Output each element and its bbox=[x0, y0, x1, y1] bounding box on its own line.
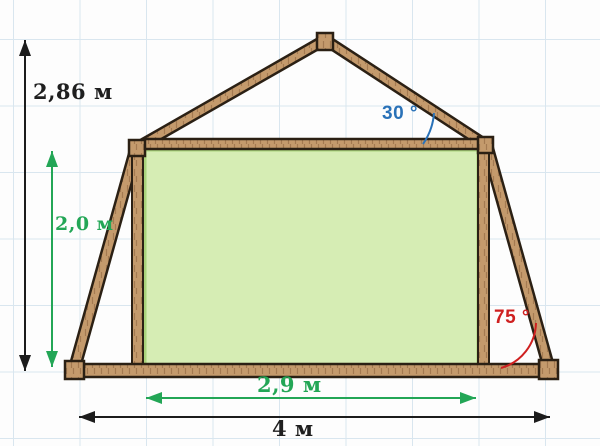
right-eaves-joint-block bbox=[478, 137, 493, 153]
total-width-label: 4 м bbox=[272, 418, 314, 439]
attic-room-area bbox=[145, 150, 478, 366]
left-post bbox=[132, 150, 143, 366]
roof-top-left-beam bbox=[136, 41, 323, 148]
roof-top-right-beam bbox=[327, 41, 486, 145]
wall-left-beam bbox=[74, 148, 136, 370]
left-eaves-joint-block bbox=[129, 140, 145, 156]
wall-right-beam bbox=[487, 146, 549, 368]
apex-joint-block bbox=[317, 33, 333, 50]
room-width-label: 2,9 м bbox=[257, 374, 322, 395]
angle-75-arc bbox=[501, 323, 536, 368]
roof-angle-label: 30 ° bbox=[382, 104, 418, 123]
wall-angle-label: 75 ° bbox=[494, 308, 530, 327]
bottom-right-joint-block bbox=[539, 360, 558, 379]
collar-beam bbox=[143, 139, 483, 149]
diagram-canvas: 2,86 м 2,0 м 30 ° 75 ° 2,9 м 4 м bbox=[0, 0, 600, 446]
right-post bbox=[478, 150, 489, 366]
room-height-label: 2,0 м bbox=[55, 215, 114, 234]
total-height-label: 2,86 м bbox=[33, 81, 113, 102]
bottom-left-joint-block bbox=[65, 361, 84, 379]
